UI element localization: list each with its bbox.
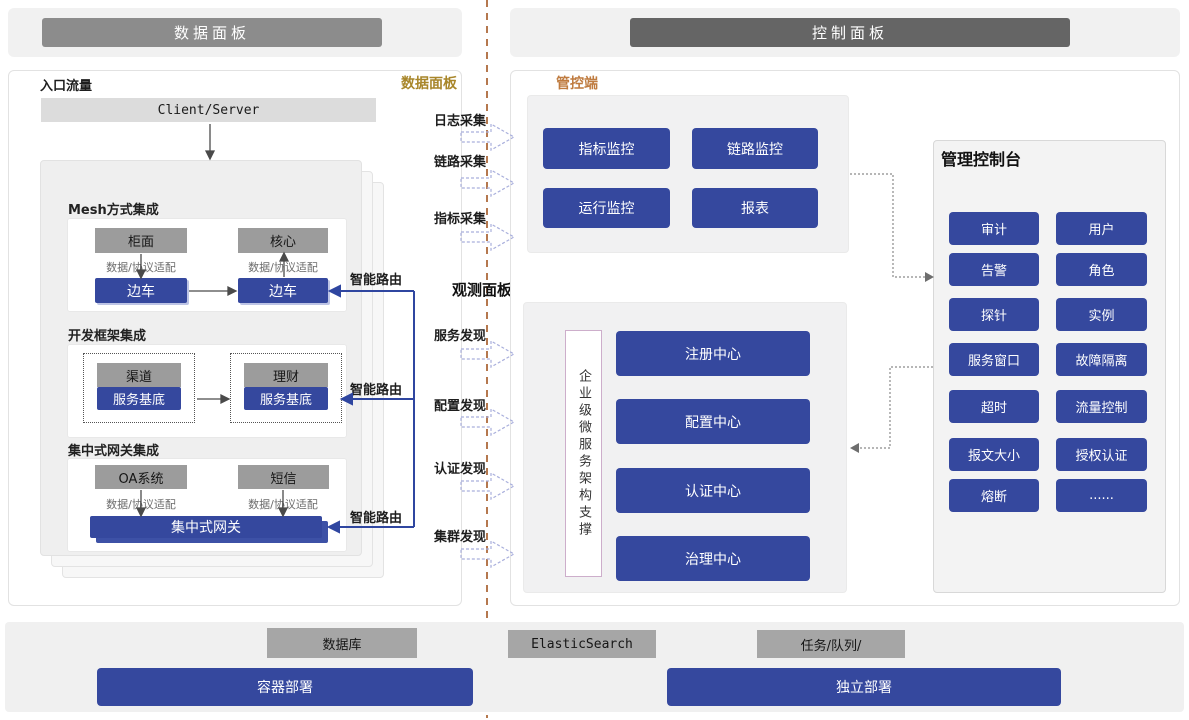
trace-collect-label: 链路采集 [424,151,486,170]
channel-box: 渠道 [97,363,181,387]
report-box: 报表 [692,188,818,228]
framework-section-title: 开发框架集成 [68,325,146,344]
more-box: ...... [1056,479,1147,512]
service-base-right: 服务基底 [244,387,328,410]
audit-box: 审计 [949,212,1039,245]
timeout-box: 超时 [949,390,1039,423]
auth-center-box: 认证中心 [616,468,810,513]
management-console-title: 管理控制台 [941,146,1021,170]
authz-box: 授权认证 [1056,438,1147,471]
auth-discovery-label: 认证发现 [424,458,486,477]
config-center-box: 配置中心 [616,399,810,444]
elasticsearch-box: ElasticSearch [508,630,656,658]
central-gateway-box: 集中式网关 [90,516,322,538]
service-discovery-label: 服务发现 [424,325,486,344]
control-side-label: 管控端 [556,73,598,93]
metric-collect-label: 指标采集 [424,208,486,227]
message-size-box: 报文大小 [949,438,1039,471]
architecture-diagram: 数据面板 控制面板 入口流量 数据面板 Client/Server Mesh方式… [0,0,1189,720]
smart-route-label: 智能路由 [350,269,402,288]
monitoring-panel [527,95,849,253]
adapter-label: 数据/协议适配 [203,259,363,275]
data-plane-header: 数据面板 [42,18,382,47]
adapter-label: 数据/协议适配 [61,496,221,512]
instance-box: 实例 [1056,298,1147,331]
service-window-box: 服务窗口 [949,343,1039,376]
observe-plane-label: 观测面板 [452,279,512,300]
plane-divider-line [486,0,488,718]
alert-box: 告警 [949,253,1039,286]
data-plane-label: 数据面板 [345,73,457,93]
sms-box: 短信 [238,465,329,489]
smart-route-label: 智能路由 [350,507,402,526]
smart-route-label: 智能路由 [350,379,402,398]
task-queue-box: 任务/队列/ [757,630,905,658]
adapter-label: 数据/协议适配 [203,496,363,512]
cluster-discovery-label: 集群发现 [424,526,486,545]
core-box: 核心 [238,228,328,253]
sidecar-box-right: 边车 [238,278,328,303]
database-box: 数据库 [267,628,417,658]
fault-isolation-box: 故障隔离 [1056,343,1147,376]
runtime-monitor-box: 运行监控 [543,188,670,228]
config-discovery-label: 配置发现 [424,395,486,414]
gateway-section-title: 集中式网关集成 [68,440,159,459]
log-collect-label: 日志采集 [424,110,486,129]
sidecar-box-left: 边车 [95,278,187,303]
service-base-left: 服务基底 [97,387,181,410]
traffic-control-box: 流量控制 [1056,390,1147,423]
role-box: 角色 [1056,253,1147,286]
control-plane-header: 控制面板 [630,18,1070,47]
governance-center-box: 治理中心 [616,536,810,581]
microservice-support-label: 企业级微服务架构支撑 [565,330,602,577]
container-deploy-box: 容器部署 [97,668,473,706]
trace-monitor-box: 链路监控 [692,128,818,169]
metric-monitor-box: 指标监控 [543,128,670,169]
wealth-box: 理财 [244,363,328,387]
counter-box: 柜面 [95,228,187,253]
registry-center-box: 注册中心 [616,331,810,376]
user-box: 用户 [1056,212,1147,245]
probe-box: 探针 [949,298,1039,331]
adapter-label: 数据/协议适配 [61,259,221,275]
standalone-deploy-box: 独立部署 [667,668,1061,706]
entry-traffic-label: 入口流量 [40,75,92,94]
mesh-section-title: Mesh方式集成 [68,199,159,218]
client-server-box: Client/Server [41,98,376,122]
circuit-break-box: 熔断 [949,479,1039,512]
oa-system-box: OA系统 [95,465,187,489]
